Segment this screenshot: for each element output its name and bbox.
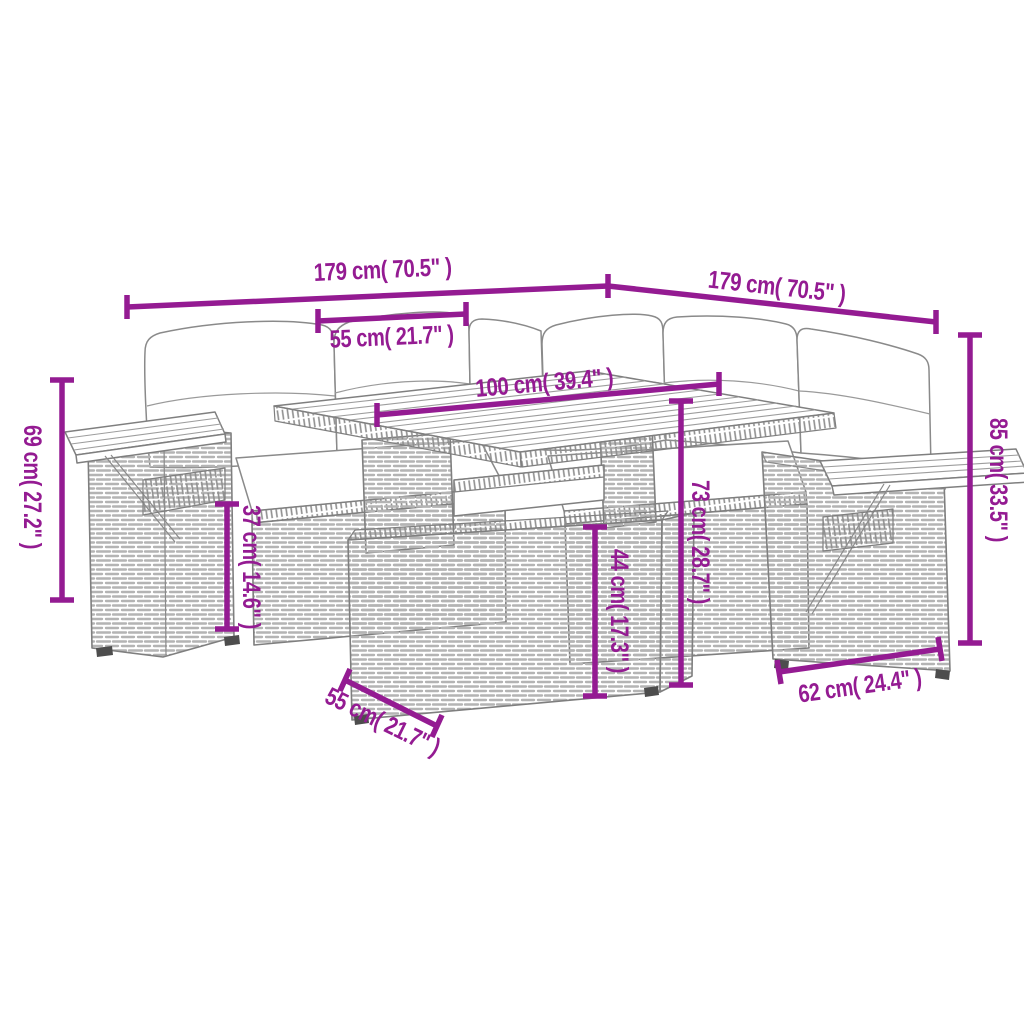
dim-table-height-label: 73 cm( 28.7" ) [686, 480, 714, 604]
right-armrest-pocket [823, 509, 893, 551]
dim-back-height-right-line [958, 335, 982, 643]
dim-width-left-label: 179 cm( 70.5" ) [313, 253, 452, 287]
dim-back-height-left-label: 69 cm( 27.2" ) [18, 425, 46, 549]
dim-back-height-left-line [50, 380, 74, 600]
dim-ottoman-height-label: 44 cm( 17.3" ) [605, 549, 633, 673]
ottoman [348, 511, 694, 720]
dim-back-height-right-label: 85 cm( 33.5" ) [984, 418, 1012, 542]
furniture-dimension-diagram: 179 cm( 70.5" ) 179 cm( 70.5" ) 55 cm( 2… [0, 0, 1024, 1024]
dim-armrest-depth-label: 62 cm( 24.4" ) [797, 664, 924, 709]
dim-seat-height-label: 37 cm( 14.6" ) [237, 505, 265, 629]
dim-seat-width-label: 55 cm( 21.7" ) [329, 320, 454, 353]
right-back-cushion-2 [797, 328, 931, 468]
